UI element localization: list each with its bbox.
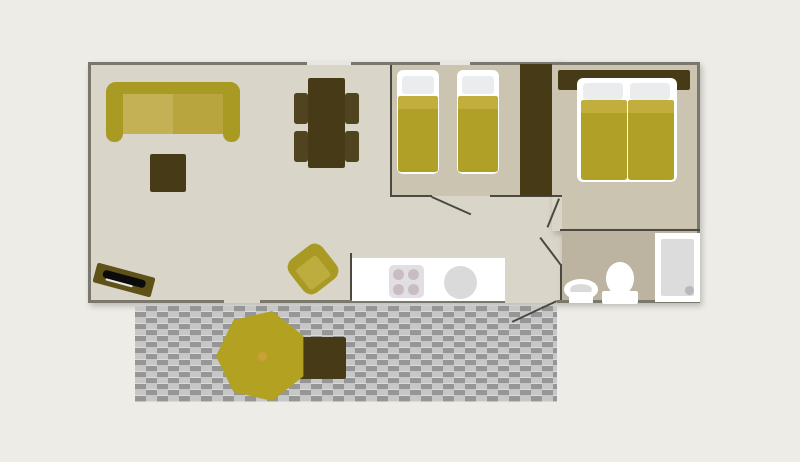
burner-2 [408,269,419,280]
single-bed-1-blanket-fold [398,96,438,109]
dining-chair-3 [345,93,359,124]
shower-drain [685,286,694,295]
wall-top-left [88,62,307,65]
deck [135,306,557,402]
sofa-cushion-right [173,94,223,134]
double-bed-blanket-right-fold [628,100,674,113]
burner-1 [393,269,404,280]
window-single-bedroom [440,62,470,65]
kitchen-counter [352,258,505,301]
wall-hall-top-a [390,195,432,197]
wall-hall-right [560,264,562,300]
dining-chair-4 [345,131,359,162]
coffee-table [150,154,186,192]
single-bed-2-blanket [458,96,498,172]
sofa-cushion-left [123,94,173,134]
single-bed-2-blanket-fold [458,96,498,109]
wall-top-middle [351,62,440,65]
double-bed-blanket-left-fold [581,100,627,113]
parasol-pole [258,352,267,361]
wall-single-bedroom-left [390,65,392,196]
window-living [307,62,351,65]
single-bed-2 [457,70,499,174]
wall-left [88,62,91,303]
washbasin-base [569,292,593,303]
single-bed-2-pillow [462,76,494,94]
double-bed-pillow-right [630,83,670,100]
sofa [106,82,240,142]
single-bed-1-blanket [398,96,438,172]
shower [655,233,700,302]
burner-3 [393,284,404,295]
dining-chair-1 [294,93,308,124]
floor-plan-scene [0,0,800,462]
double-bed [577,78,677,182]
stove [389,265,424,298]
kitchen-sink [444,266,477,299]
sofa-arm-left [106,82,123,142]
toilet-tank [602,291,638,304]
single-bed-1 [397,70,439,174]
double-bed-blanket-right [628,100,674,180]
double-bed-blanket-left [581,100,627,180]
dining-table [308,78,345,168]
single-bed-1-pillow [402,76,434,94]
wardrobe [520,64,552,196]
sofa-arm-right [223,82,240,142]
double-bed-pillow-left [583,83,623,100]
wall-bottom-left [88,300,224,303]
wall-bathroom-top [560,229,700,231]
burner-4 [408,284,419,295]
patio-table [296,337,346,379]
dining-chair-2 [294,131,308,162]
wall-top-right [470,62,700,65]
